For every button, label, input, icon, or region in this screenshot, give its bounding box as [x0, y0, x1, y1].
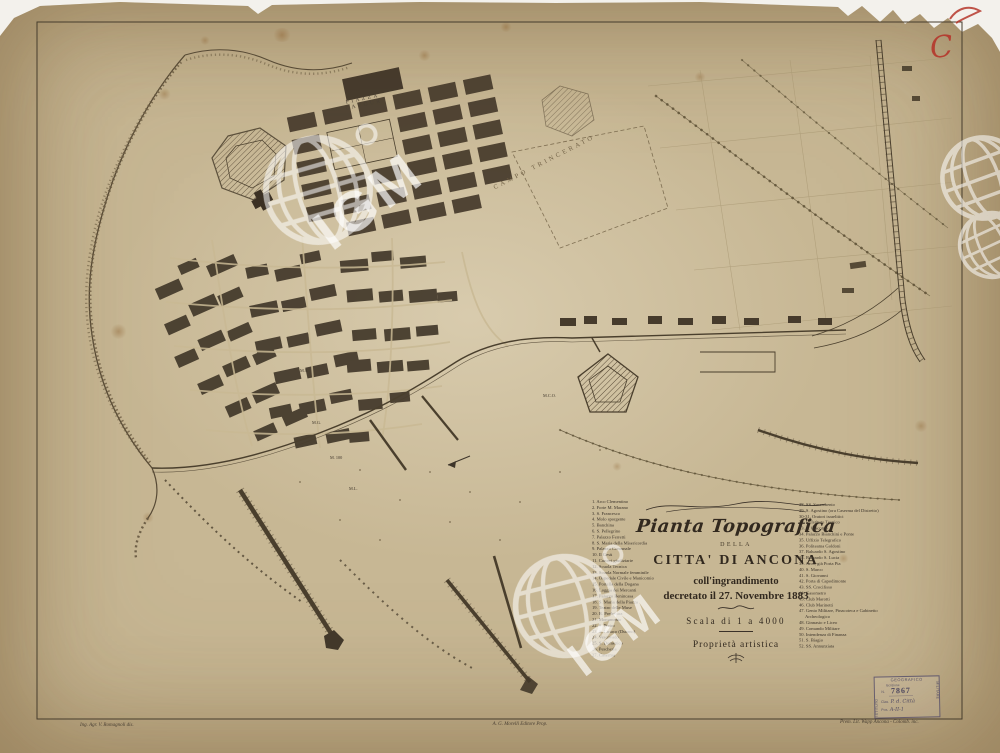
imprint-publisher: A. G. Morelli Editore Prop.	[420, 721, 620, 727]
legend-item: 47. Genio Militare, Pinacoteca e Gabinet…	[799, 608, 895, 620]
depth-dots	[299, 449, 601, 541]
lazzaretto-pentagon	[578, 338, 638, 412]
field-parcels	[648, 56, 958, 330]
stamp-left-text: ISTITUTO	[875, 683, 879, 717]
entrenched-camp-outline	[512, 126, 668, 248]
pier-label: M.C.O.	[543, 393, 556, 398]
legend-item: 52. SS. Annunziata	[799, 644, 895, 650]
small-ornament	[716, 604, 756, 612]
imprint-draughtsman: Ing. Agr. V. Romagnoli dis.	[80, 722, 134, 728]
pier-label: M. 100	[330, 455, 342, 460]
piazza-cavour-square	[327, 119, 398, 169]
red-pencil-letter: C	[928, 29, 955, 66]
legend-column-left: 1. Arco Clementino 2. Forte M. Marano 3.…	[592, 499, 688, 658]
port-basin	[700, 352, 775, 372]
stamp-top-text: GEOGRAFICO	[875, 677, 939, 683]
stamp-class-row: Clas.P. d. Città	[881, 698, 915, 704]
arrow-symbol	[448, 456, 470, 468]
pier-label: M.L.	[349, 486, 358, 491]
pier-head	[520, 676, 538, 694]
new-town-blocks	[281, 49, 517, 244]
stamp-number-label: N.	[881, 690, 885, 694]
mole-head-fort	[324, 630, 344, 650]
divider-rule	[719, 631, 753, 632]
stamp-right-text: MILITARE	[935, 681, 939, 715]
fleuron-ornament	[722, 652, 750, 664]
citadel-fort	[212, 128, 286, 200]
railway	[812, 40, 925, 362]
stamp-number-value: 7867	[889, 686, 913, 696]
tree-lined-roads	[560, 60, 948, 500]
quay-buildings	[560, 316, 832, 326]
stamp-position-row: Pos.A-II-1	[881, 707, 904, 713]
library-stamp: GEOGRAFICO ISTITUTO MILITARE Iscrizione …	[874, 675, 939, 716]
legend-item: 27. Caserma	[592, 652, 688, 658]
stamp-class-value: P. d. Città	[891, 698, 915, 704]
red-pencil-squiggle	[946, 3, 986, 25]
scanned-map-page: PIAZZA CAVOUR CAMPO TRINCERATO M.S. M.G.…	[0, 0, 1000, 753]
small-fort	[542, 86, 594, 136]
imprint-lithographer: Prem. Lit. Wapp Ancona - Colomb. inc.	[840, 719, 919, 725]
stamp-position-value: A-II-1	[890, 707, 904, 713]
pier-label: M.G.	[312, 420, 321, 425]
pier-label: M.S.	[300, 368, 308, 373]
legend-column-right: 28. SS. Sacramento 29. S. Agostino (ora …	[799, 502, 895, 649]
